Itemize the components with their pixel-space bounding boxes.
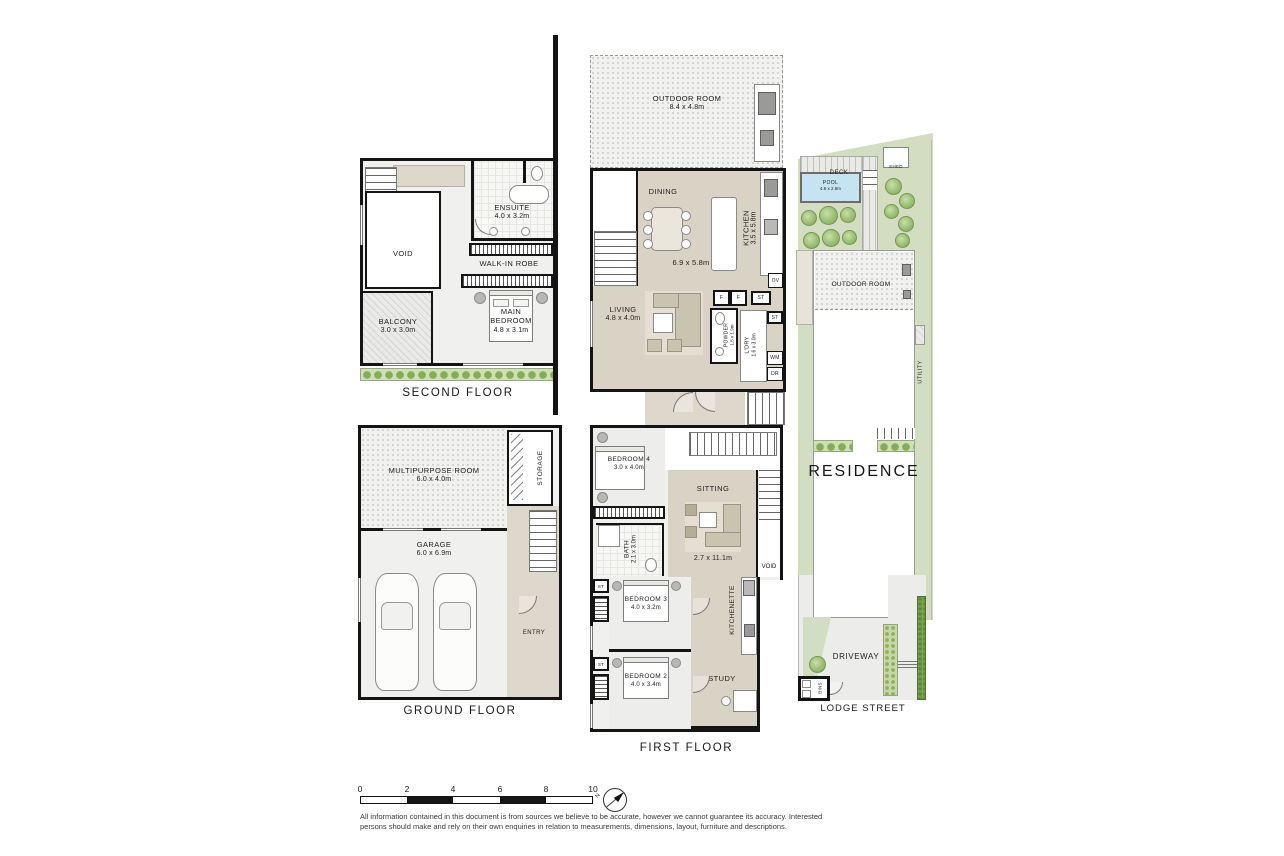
site-label-shed: SHED [883,154,909,174]
party-wall [553,35,558,415]
outdoor-fridge [760,130,774,146]
fridge-1: F [713,290,730,306]
outdoor-room: OUTDOOR ROOM8.4 x 4.8m [590,55,783,168]
room-label-ff-void: VOID [756,554,782,574]
scale-tick-0: 0 [352,784,368,794]
landing-stairs [689,432,777,456]
stair-landing [393,165,465,187]
tree-7 [885,178,902,195]
ottoman-1 [647,339,662,352]
sitting-sofa-return [705,532,741,547]
room-label-living: LIVING4.8 x 4.0m [595,305,651,324]
room-label-sitting: SITTING [673,484,753,493]
room-label-kitchenette: KITCHENETTE [729,585,737,635]
tree-3 [840,207,856,223]
study-chair [721,696,731,706]
living-staircase [594,231,637,286]
room-label-ensuite: ENSUITE4.0 x 3.2m [475,203,549,222]
window-bedroom3-left [590,626,593,650]
room-label-entry: ENTRY [511,620,557,640]
hedge [917,596,926,700]
cooktop [764,219,778,235]
storage-shelves [511,434,523,500]
store-cupboard-1: ST [751,291,771,305]
open-plan-dims: 6.9 x 5.8m [651,257,731,267]
disclaimer-line-1: All information contained in this docume… [360,812,1060,821]
nightstand-right [536,292,548,304]
room-label-bedroom4: BEDROOM 43.0 x 4.0m [597,456,661,473]
store-cupboard-2: ST [767,311,783,324]
dining-table [651,207,683,251]
bin-2 [802,690,811,698]
dining-chair-1 [643,211,653,221]
dryer: DR [767,367,783,381]
tree-2 [819,206,838,225]
room-label-garage: GARAGE6.0 x 6.9m [369,540,499,559]
bedroom2-nstand-2 [671,658,681,668]
neighbour-strip [796,250,813,325]
room-label-powder: POWDER 1.5 x 1.9m [723,323,734,347]
site-bbq [902,264,911,276]
sitting-dims: 2.7 x 11.1m [675,554,751,564]
window-balcony [383,363,417,366]
coffee-table [653,313,673,333]
window-living-left [590,301,593,347]
tree-9 [884,204,899,219]
kitchenette-sink [744,624,755,637]
compass-needle [614,790,626,802]
study-desk [733,690,757,712]
dining-chair-4 [681,211,691,221]
scale-seg-4 [500,797,546,803]
room-label-bedroom3: BEDROOM 34.0 x 3.2m [615,596,677,613]
first-floor-stairs [759,470,780,520]
site-label-pool: POOL 4.6 x 2.5m [800,180,861,192]
room-label-multipurpose: MULTIPURPOSE ROOM6.0 x 4.0m [369,466,499,485]
window-void-left [360,205,363,245]
second-floor-plan: VOID ENSUITE4.0 x 3.2m WALK-IN ROBE MAIN… [360,158,556,366]
site-label-outdoor-room: OUTDOOR ROOM [815,272,907,292]
car-left [375,573,419,691]
fridge-2: F [730,290,747,306]
scale-seg-5 [546,797,592,803]
nightstand-left [474,292,486,304]
gate-lines [898,661,917,669]
kitchenette-cooktop [743,580,755,596]
garage-door-gap-right [441,528,481,531]
disclaimer-line-2: persons should make and rely on their ow… [360,822,1060,831]
site-outdoor-fridge [903,290,911,299]
living-level-plan: DINING KITCHEN 3.5 x 5.8m 6.9 x 5.8m LIV… [590,168,786,392]
ground-staircase [529,510,557,572]
entry-vestibule [645,392,745,425]
bedroom2-closet: ST [593,657,609,671]
scale-seg-2 [407,797,453,803]
bedroom2-robe [593,674,609,700]
wardrobe-top [469,243,553,256]
scale-seg-3 [453,797,499,803]
scale-tick-6: 6 [492,784,508,794]
armchair-1 [685,504,697,516]
room-label-walk-in-robe: WALK-IN ROBE [465,259,553,268]
tree-10 [898,216,914,232]
wc-wall [523,161,526,183]
room-label-storage: STORAGE [537,450,545,485]
sofa-back [653,293,679,308]
bedroom3-nstand-1 [612,581,622,591]
room-label-kitchen: KITCHEN 3.5 x 5.8m [741,210,758,246]
planter-strip [360,368,556,381]
bbq [758,92,776,115]
armchair-2 [685,526,697,538]
room-label-outdoor: OUTDOOR ROOM8.4 x 4.8m [637,94,737,113]
room-label-laundry: L'DRY 1.6 x 3.0m [745,333,758,356]
washing-machine: WM [767,351,783,365]
bedroom4-wardrobe [593,506,665,519]
scale-bar [360,796,593,804]
site-stairs [877,428,915,439]
first-floor-plan: BEDROOM 43.0 x 4.0m SITTING 2.7 x 11.1m … [590,425,783,732]
dining-chair-2 [643,225,653,235]
bedroom3-nstand-2 [671,581,681,591]
tree-5 [822,229,840,247]
utility-strip [915,325,925,345]
site-label-residence: RESIDENCE [806,463,922,481]
compass-icon [603,788,627,812]
tree-11 [895,233,910,248]
study-right-wall [757,577,760,729]
floorplan-canvas: VOID ENSUITE4.0 x 3.2m WALK-IN ROBE MAIN… [0,0,1284,856]
dining-chair-5 [681,225,691,235]
shower [598,525,620,547]
room-label-balcony: BALCONY3.0 x 3.0m [365,317,431,336]
room-label-dining: DINING [625,187,701,196]
ground-floor-plan: MULTIPURPOSE ROOM6.0 x 4.0m STORAGE GARA… [358,425,562,700]
room-label-main-bedroom: MAIN BEDROOM4.8 x 3.1m [481,307,541,336]
tree-4 [803,232,820,249]
toilet [531,166,543,181]
site-label-deck: DECK [800,160,878,180]
bedroom4-nstand-1 [597,432,608,443]
bathtub [509,185,549,204]
study-bottom-wall [691,726,760,729]
basin-right [521,227,530,236]
site-label-street: LODGE STREET [798,703,928,714]
site-label-bins: BINS [817,682,822,694]
window-bedroom2-left [590,704,593,728]
bath-toilet [645,558,657,572]
first-floor-title: FIRST FLOOR [590,742,783,754]
dining-chair-3 [643,239,653,249]
bedroom2-nstand-1 [612,658,622,668]
scale-tick-10: 10 [585,784,601,794]
room-label-bedroom2: BEDROOM 24.0 x 3.4m [615,673,677,690]
room-label-void: VOID [373,249,433,258]
tree-1 [801,210,817,226]
exterior-cutout [760,580,786,735]
scale-tick-2: 2 [399,784,415,794]
car-right [433,573,477,691]
site-boundary-right [931,140,932,620]
scale-seg-1 [361,797,407,803]
wardrobe-bottom [461,274,553,288]
bedroom3-closet: ST [593,579,609,593]
ottoman-2 [667,339,682,352]
dining-chair-6 [681,239,691,249]
tree-6 [842,230,857,245]
void-room [365,191,441,289]
tree-8 [899,193,915,209]
kitchen-sink [764,179,778,197]
front-door-arc-left [673,392,693,412]
scale-tick-8: 8 [538,784,554,794]
site-label-utility: UTILITY [918,360,925,383]
site-label-driveway: DRIVEWAY [816,645,896,665]
bin-1 [802,680,811,688]
window-garage-left [358,578,361,622]
site-planter-right [877,440,915,452]
bedroom3-robe [593,596,609,622]
bedroom4-nstand-2 [597,492,608,503]
vestibule-stairs [747,392,785,425]
room-label-bath: BATH 2.1 x 3.0m [624,535,639,563]
sitting-coffee-table [699,512,717,528]
garage-door-gap-left [383,528,423,531]
front-door-arc-right [695,392,715,412]
second-floor-title: SECOND FLOOR [360,387,556,399]
site-planter-left [813,440,853,452]
oven: OV [768,273,783,288]
window-bedroom-bottom [463,363,523,366]
scale-tick-4: 4 [445,784,461,794]
powder-basin [715,347,724,356]
ground-floor-title: GROUND FLOOR [358,705,562,717]
